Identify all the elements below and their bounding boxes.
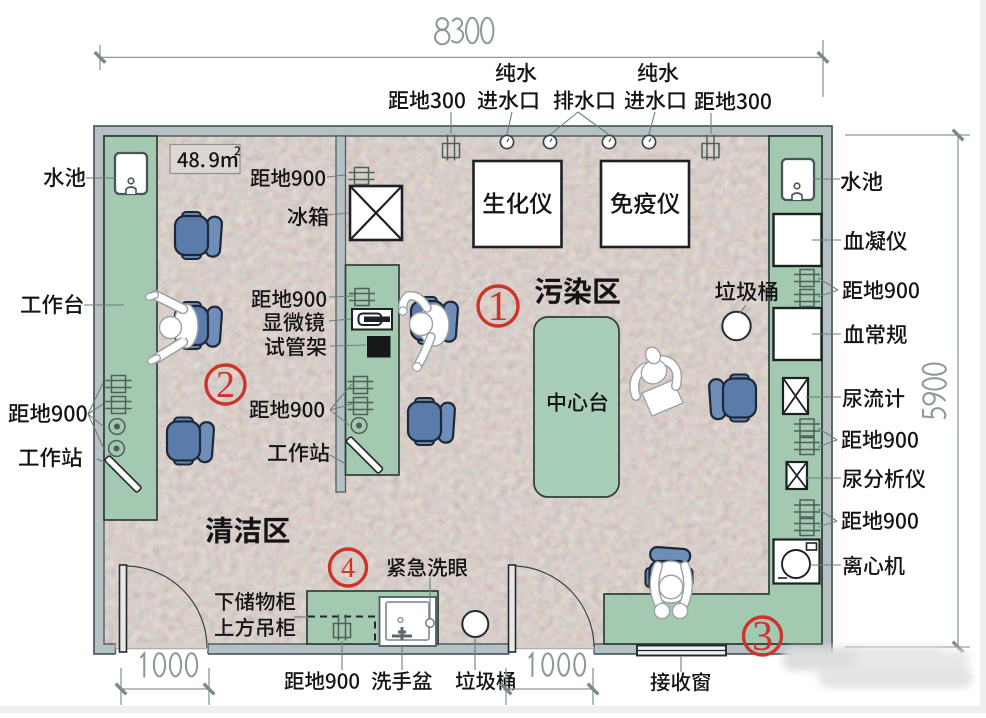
svg-text:2: 2 — [216, 364, 235, 406]
svg-text:3: 3 — [752, 614, 773, 660]
svg-text:4: 4 — [341, 553, 355, 584]
svg-text:1: 1 — [488, 284, 509, 330]
